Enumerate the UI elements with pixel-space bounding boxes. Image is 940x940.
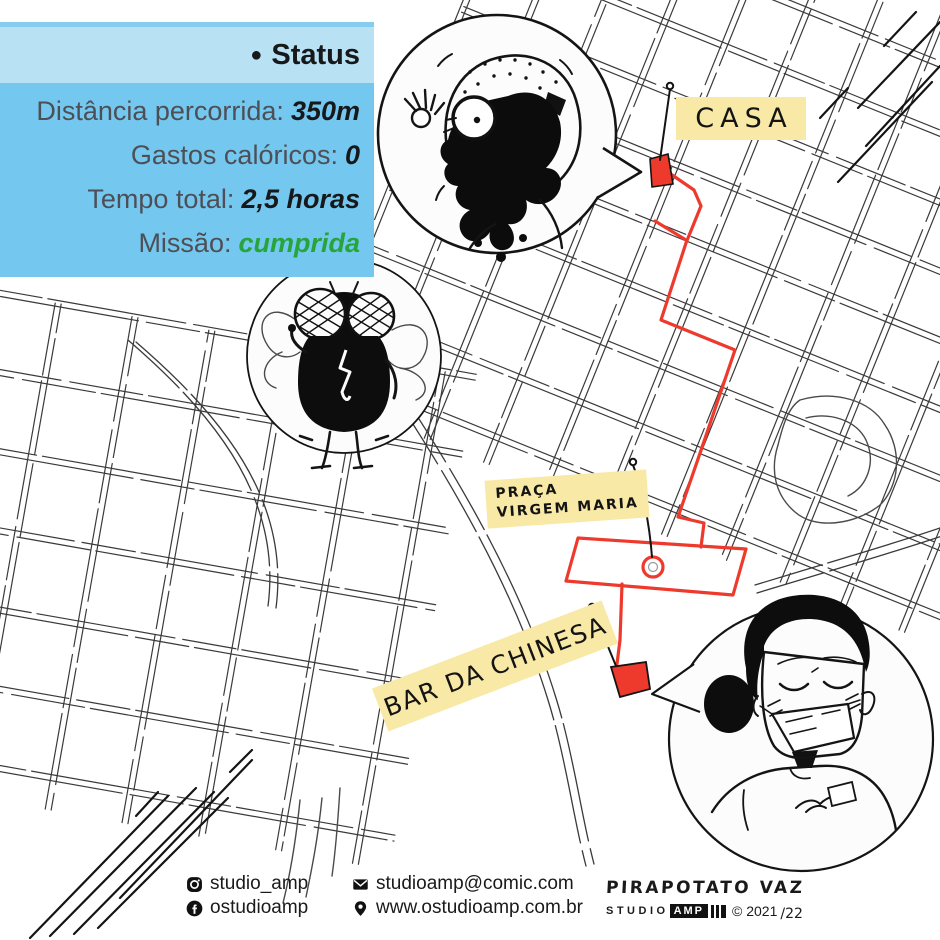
calories-value: 0	[345, 140, 360, 170]
time-value: 2,5 horas	[241, 184, 360, 214]
instagram-icon	[186, 876, 203, 893]
facebook-handle[interactable]: ostudioamp	[186, 896, 308, 920]
author-name: PIRAPOTATO VAZ	[605, 878, 805, 898]
facebook-icon	[186, 900, 203, 917]
status-panel-body: Distância percorrida:350m Gastos calóric…	[0, 83, 374, 277]
masked-woman-illustration	[652, 595, 933, 871]
website-text: www.ostudioamp.com.br	[376, 897, 583, 919]
comic-map-page: ● Status Distância percorrida:350m Gasto…	[0, 0, 940, 940]
website-row[interactable]: www.ostudioamp.com.br	[352, 896, 583, 920]
casa-label: CASA	[676, 97, 806, 140]
hair-bun	[704, 675, 754, 733]
distance-value: 350m	[291, 96, 360, 126]
facebook-handle-text: ostudioamp	[210, 897, 308, 919]
fly-illustration	[247, 259, 441, 468]
logo-bar-icon	[716, 905, 719, 918]
status-panel-header: ● Status	[0, 22, 374, 83]
logo-bar-icon	[721, 905, 726, 918]
email-text: studioamp@comic.com	[376, 873, 574, 895]
status-panel: ● Status Distância percorrida:350m Gasto…	[0, 22, 374, 277]
status-row-calories: Gastos calóricos:0	[8, 133, 360, 177]
route	[566, 166, 746, 664]
logo-bar-icon	[711, 905, 714, 918]
instagram-handle-text: studio_amp	[210, 873, 308, 895]
email-row[interactable]: studioamp@comic.com	[352, 872, 583, 896]
casa-building	[650, 154, 673, 187]
studio-box: AMP	[670, 904, 708, 918]
roundabout-icon	[643, 557, 663, 577]
wide-eye	[453, 97, 495, 139]
status-row-distance: Distância percorrida:350m	[8, 89, 360, 133]
location-pin-icon	[352, 900, 369, 917]
casa-pin-line	[660, 89, 670, 160]
studio-logo: STUDIO AMP © 2021 /22	[606, 903, 805, 919]
status-row-time: Tempo total:2,5 horas	[8, 177, 360, 221]
year-suffix: /22	[780, 906, 803, 922]
oil-covered-man-illustration	[378, 15, 641, 262]
status-title: Status	[271, 39, 360, 72]
praca-label-text: PRAÇA VIRGEM MARIA	[495, 475, 640, 523]
footer-social-column: studio_amp ostudioamp	[186, 872, 308, 920]
time-label: Tempo total:	[87, 184, 234, 214]
speech-pointer	[597, 148, 641, 198]
copyright-text: © 2021	[732, 903, 777, 919]
bullet-icon: ●	[250, 44, 262, 67]
distance-label: Distância percorrida:	[36, 96, 284, 126]
mission-value: cumprida	[238, 228, 360, 258]
footer-contact-column: studioamp@comic.com www.ostudioamp.com.b…	[352, 872, 583, 920]
mission-label: Missão:	[138, 228, 231, 258]
envelope-icon	[352, 876, 369, 893]
map-pin-dot-icon	[630, 459, 636, 465]
raised-hand	[412, 109, 430, 127]
status-row-mission: Missão:cumprida	[8, 221, 360, 265]
route-exit	[617, 584, 622, 664]
map-pin-dot-icon	[667, 83, 673, 89]
studio-word: STUDIO	[606, 905, 669, 917]
footer-credit-column: PIRAPOTATO VAZ STUDIO AMP © 2021 /22	[606, 878, 805, 919]
bar-building	[611, 662, 650, 697]
calories-label: Gastos calóricos:	[131, 140, 338, 170]
instagram-handle[interactable]: studio_amp	[186, 872, 308, 896]
